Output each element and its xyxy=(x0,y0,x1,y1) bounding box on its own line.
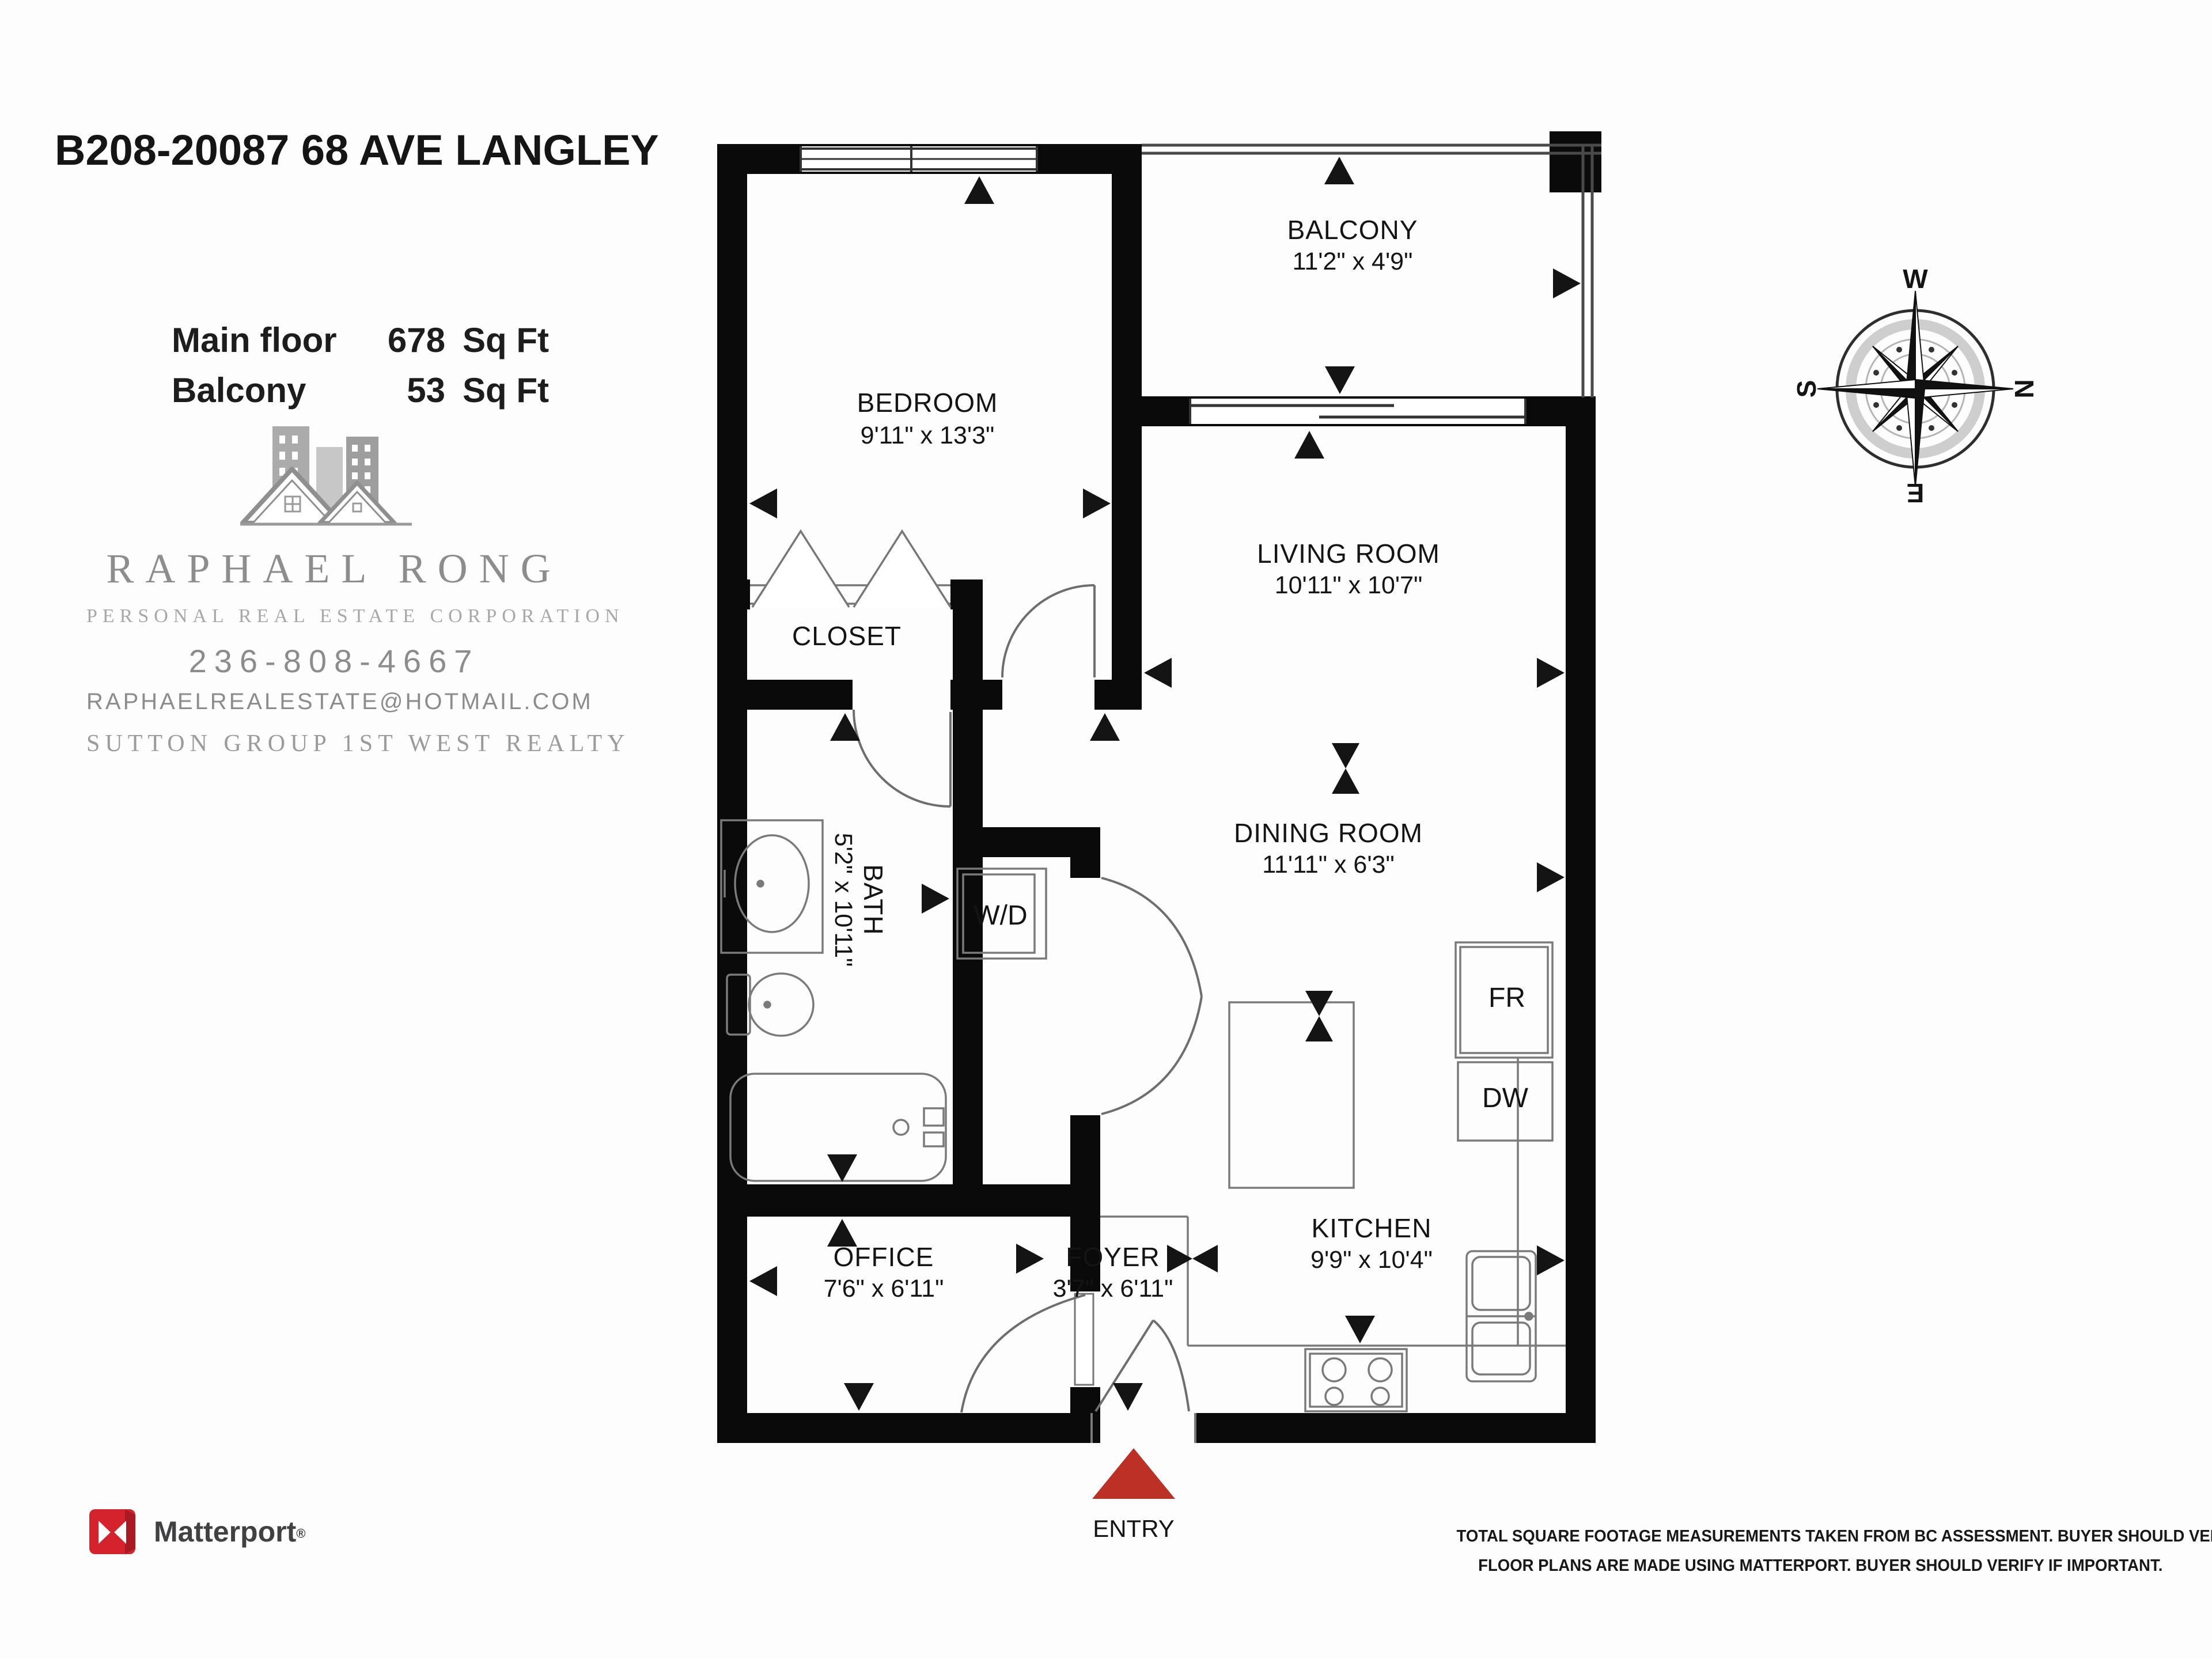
svg-text:KITCHEN: KITCHEN xyxy=(1312,1213,1432,1243)
room-label-closet: CLOSET xyxy=(792,621,902,651)
svg-text:11'11" x 6'3": 11'11" x 6'3" xyxy=(1262,851,1394,878)
registered-mark: ® xyxy=(296,1527,305,1541)
svg-text:CLOSET: CLOSET xyxy=(792,621,902,651)
entry-arrow-icon xyxy=(1092,1448,1175,1499)
room-label-balcony: BALCONY 11'2" x 4'9" xyxy=(1287,215,1418,275)
compass-west-label: W xyxy=(1903,264,1928,294)
measure-arrows-layer xyxy=(749,157,1581,1411)
disclaimer-line2: FLOOR PLANS ARE MADE USING MATTERPORT. B… xyxy=(1457,1551,2185,1581)
room-label-bedroom: BEDROOM 9'11" x 13'3" xyxy=(857,388,998,449)
svg-text:3'7" x 6'11": 3'7" x 6'11" xyxy=(1053,1275,1173,1302)
svg-text:FOYER: FOYER xyxy=(1066,1242,1160,1272)
washer-dryer-label: W/D xyxy=(974,900,1027,931)
compass-north-label: N xyxy=(2009,379,2039,398)
svg-text:7'6" x 6'11": 7'6" x 6'11" xyxy=(824,1275,944,1302)
compass-rose-icon: W N E S xyxy=(1791,264,2039,508)
svg-text:BATH: BATH xyxy=(858,864,888,935)
disclaimer-line1: TOTAL SQUARE FOOTAGE MEASUREMENTS TAKEN … xyxy=(1457,1522,2185,1551)
svg-text:5'2" x 10'11": 5'2" x 10'11" xyxy=(829,833,857,967)
entry-label: ENTRY xyxy=(1093,1515,1175,1542)
closet-bifold-doors xyxy=(750,531,950,607)
floorplan-page: B208-20087 68 AVE LANGLEY Main floor 678… xyxy=(0,0,2212,1659)
svg-text:BEDROOM: BEDROOM xyxy=(857,388,998,418)
room-label-kitchen: KITCHEN 9'9" x 10'4" xyxy=(1310,1213,1433,1274)
matterport-branding: Matterport® xyxy=(89,1507,305,1556)
svg-text:10'11" x 10'7": 10'11" x 10'7" xyxy=(1275,571,1423,599)
svg-text:BALCONY: BALCONY xyxy=(1287,215,1418,245)
matterport-icon xyxy=(89,1507,137,1556)
svg-text:11'2" x 4'9": 11'2" x 4'9" xyxy=(1293,248,1413,275)
room-label-office: OFFICE 7'6" x 6'11" xyxy=(824,1242,944,1302)
floorplan-drawing: BALCONY 11'2" x 4'9" BEDROOM 9'11" x 13'… xyxy=(0,0,2212,1659)
dining-table-icon xyxy=(1229,1002,1354,1188)
svg-text:DINING ROOM: DINING ROOM xyxy=(1234,818,1423,848)
entry-marker: ENTRY xyxy=(1092,1448,1175,1542)
room-label-dining-room: DINING ROOM 11'11" x 6'3" xyxy=(1234,818,1423,878)
bedroom-window xyxy=(801,146,1037,172)
svg-text:9'9" x 10'4": 9'9" x 10'4" xyxy=(1310,1246,1433,1274)
room-label-living-room: LIVING ROOM 10'11" x 10'7" xyxy=(1257,539,1440,599)
matterport-wordmark: Matterport xyxy=(154,1516,296,1548)
compass-south-label: S xyxy=(1791,380,1821,398)
room-label-bath: BATH 5'2" x 10'11" xyxy=(829,833,888,967)
kitchen-sink-icon xyxy=(1467,1251,1536,1381)
dishwasher-label: DW xyxy=(1482,1083,1529,1113)
svg-text:OFFICE: OFFICE xyxy=(834,1242,934,1272)
room-labels-layer: BALCONY 11'2" x 4'9" BEDROOM 9'11" x 13'… xyxy=(792,215,1529,1302)
svg-text:LIVING ROOM: LIVING ROOM xyxy=(1257,539,1440,569)
stove-icon xyxy=(1305,1349,1407,1411)
fridge-label: FR xyxy=(1488,983,1525,1013)
svg-text:9'11" x 13'3": 9'11" x 13'3" xyxy=(861,422,995,449)
compass-east-label: E xyxy=(1907,478,1925,508)
balcony-sliding-door xyxy=(1190,399,1525,424)
doors-layer xyxy=(854,585,1202,1443)
disclaimer: TOTAL SQUARE FOOTAGE MEASUREMENTS TAKEN … xyxy=(1457,1522,2185,1581)
